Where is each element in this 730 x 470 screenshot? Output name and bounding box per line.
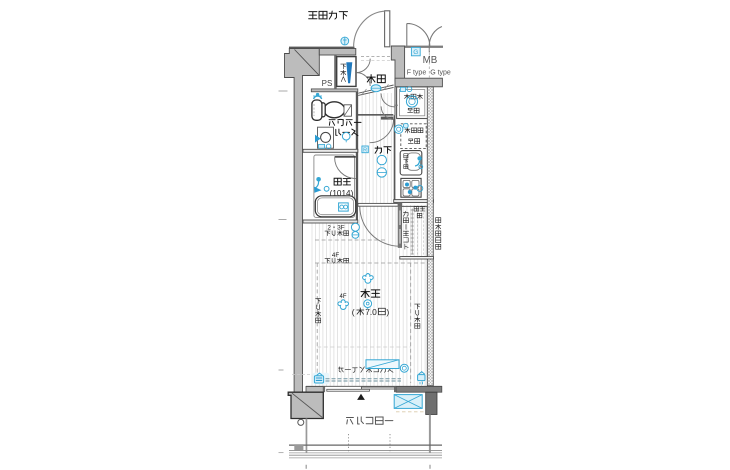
- svg-text:PS: PS: [322, 79, 333, 88]
- svg-text:G type: G type: [430, 70, 451, 77]
- svg-text:(: (: [352, 307, 355, 317]
- svg-text:F type: F type: [407, 70, 427, 77]
- svg-text:2・3F: 2・3F: [327, 225, 344, 232]
- svg-text:G: G: [413, 49, 418, 56]
- svg-text:4F: 4F: [332, 252, 340, 259]
- svg-text:4F: 4F: [339, 294, 346, 300]
- svg-text:R: R: [363, 148, 367, 154]
- svg-text:7.0: 7.0: [365, 307, 377, 317]
- svg-text:MB: MB: [423, 55, 438, 66]
- svg-text:): ): [386, 307, 389, 317]
